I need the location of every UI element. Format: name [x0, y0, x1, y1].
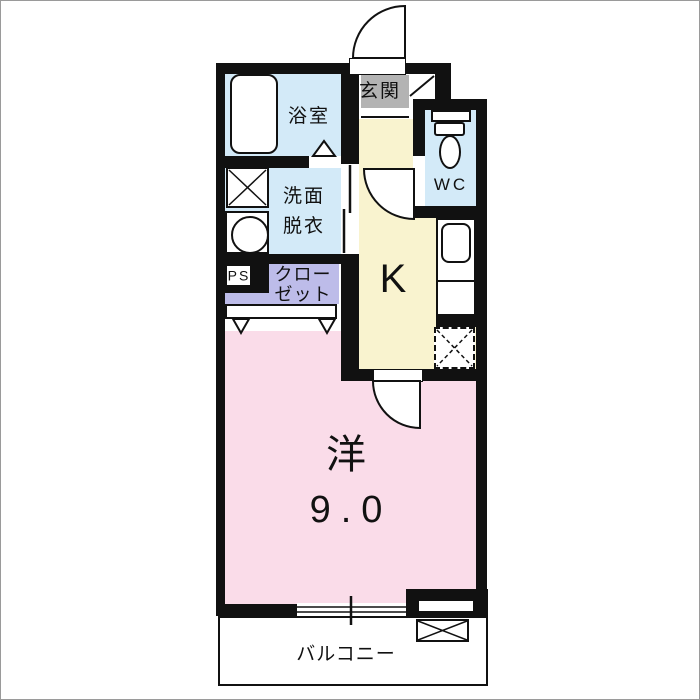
washroom-sliding-door: [341, 164, 359, 254]
wc-window-shelf: [431, 110, 471, 122]
entrance-corner-panel: [409, 74, 435, 98]
refrigerator-space-icon: [434, 327, 475, 369]
wall-counter-bottom: [436, 316, 487, 327]
washroom-label-line1: 洗面: [283, 187, 325, 207]
wall-top-left: [216, 63, 349, 74]
wall-ps-under: [225, 286, 269, 293]
washroom-label-line2: 脱衣: [283, 217, 325, 237]
wall-right: [476, 99, 487, 616]
sliding-window-main: [297, 603, 406, 616]
closet-door-track: [225, 304, 337, 319]
toilet-tank-icon: [434, 122, 465, 136]
ac-unit-icon: [416, 619, 469, 642]
closet-label-line1: クロー: [275, 266, 332, 285]
closet-label-line2: ゼット: [275, 286, 332, 305]
kitchen-label: K: [380, 258, 407, 300]
wall-wc-bottom: [413, 206, 487, 218]
wall-entry-corner: [435, 63, 451, 99]
pipe-space-label: PS: [228, 269, 251, 284]
wall-kitchen-bottom-left: [341, 369, 373, 381]
entrance-step-area: [359, 108, 413, 119]
washbasin-icon: [231, 216, 269, 254]
kitchen-sink-icon: [441, 223, 471, 263]
kitchen-door-opening: [373, 369, 423, 382]
wc-label: WC: [434, 176, 468, 194]
western-room-size: 9.0: [310, 491, 393, 531]
balcony-label: バルコニー: [296, 645, 396, 665]
small-window-right: [418, 600, 474, 612]
western-room-label: 洋: [326, 434, 366, 476]
wc-door-opening: [413, 156, 425, 206]
entrance-door-opening: [349, 58, 406, 75]
entrance-label: 玄関: [359, 82, 401, 102]
wall-wc-left: [413, 99, 425, 156]
wall-left: [216, 63, 225, 616]
bathroom-label: 浴室: [288, 107, 330, 127]
washing-machine-icon: [226, 167, 269, 208]
wall-kitchen-bottom-right: [423, 369, 487, 381]
bathtub-icon: [230, 74, 278, 154]
western-room-floor: [225, 331, 341, 604]
wall-washroom-bottom: [225, 254, 341, 264]
toilet-bowl-icon: [439, 135, 461, 169]
closet-floor-strip: [225, 293, 269, 304]
floorplan-canvas: 玄関 浴室 洗面 脱衣 PS クロー ゼット WC K 洋 9.0 バルコニー: [0, 0, 700, 700]
entrance-door-arc: [353, 6, 405, 58]
